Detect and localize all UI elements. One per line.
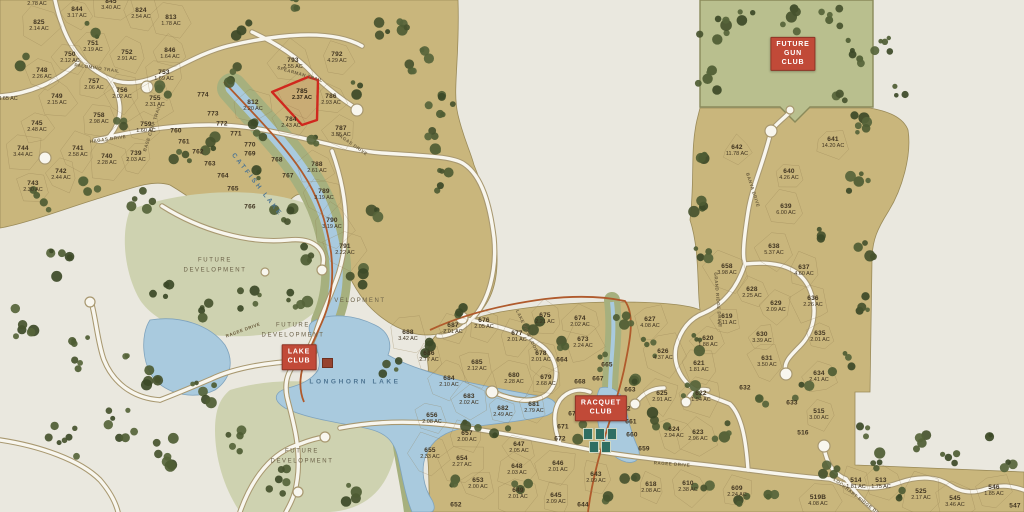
lot-number: 655 bbox=[420, 447, 440, 454]
lot-acreage: 2.01 AC bbox=[443, 330, 463, 336]
lot-785-selected[interactable]: 7852.37 AC bbox=[292, 88, 312, 102]
lot-516[interactable]: 516 bbox=[797, 429, 808, 436]
lot-766[interactable]: 766 bbox=[244, 203, 255, 210]
lot-774[interactable]: 774 bbox=[197, 91, 208, 98]
lot-752[interactable]: 7522.91 AC bbox=[117, 49, 137, 63]
lot-number: 766 bbox=[244, 203, 255, 210]
lot-acreage: 1.64 AC bbox=[160, 55, 180, 61]
lot-number: 623 bbox=[688, 429, 708, 436]
lot-acreage: 11.78 AC bbox=[726, 152, 748, 158]
lot-label[interactable]: 2.78 AC bbox=[27, 1, 47, 7]
lot-number: 631 bbox=[757, 355, 777, 362]
lot-515[interactable]: 5153.00 AC bbox=[809, 408, 829, 422]
lot-acreage: 5.37 AC bbox=[764, 251, 784, 257]
lot-742[interactable]: 7422.44 AC bbox=[51, 168, 71, 182]
lot-762[interactable]: 762 bbox=[192, 148, 203, 155]
lot-767[interactable]: 767 bbox=[282, 172, 293, 179]
lot-number: 516 bbox=[797, 429, 808, 436]
lot-number: 686 bbox=[419, 350, 439, 357]
lot-676[interactable]: 6762.05 AC bbox=[474, 317, 494, 331]
lot-768[interactable]: 768 bbox=[271, 156, 282, 163]
lot-number: 663 bbox=[624, 386, 635, 393]
lot-acreage: 2.20 AC bbox=[243, 107, 263, 113]
lot-acreage: 2.33 AC bbox=[420, 455, 440, 461]
lot-680[interactable]: 6802.28 AC bbox=[504, 372, 524, 386]
lot-741[interactable]: 7412.58 AC bbox=[68, 145, 88, 159]
lot-634[interactable]: 6342.41 AC bbox=[809, 370, 829, 384]
lot-758[interactable]: 7582.98 AC bbox=[89, 112, 109, 126]
lot-number: 625 bbox=[652, 390, 672, 397]
lot-685[interactable]: 6852.12 AC bbox=[467, 359, 487, 373]
lot-748[interactable]: 7482.26 AC bbox=[32, 67, 52, 81]
lot-number: 675 bbox=[535, 312, 555, 319]
lot-acreage: 3.19 AC bbox=[314, 196, 334, 202]
lot-number: 812 bbox=[243, 99, 263, 106]
lot-acreage: 2.10 AC bbox=[439, 383, 459, 389]
lot-825[interactable]: 8252.14 AC bbox=[29, 19, 49, 33]
lot-acreage: 2.78 AC bbox=[27, 1, 47, 7]
road-name-label: BANYA DRIVE bbox=[745, 172, 761, 208]
lot-760[interactable]: 760 bbox=[170, 127, 181, 134]
lot-number: 647 bbox=[509, 441, 529, 448]
lot-number: 768 bbox=[271, 156, 282, 163]
lot-acreage: 3.40 AC bbox=[101, 6, 121, 12]
lot-744[interactable]: 7443.44 AC bbox=[13, 145, 33, 159]
future-development-label: VELOPMENT bbox=[334, 297, 385, 307]
lot-acreage: 2.41 AC bbox=[809, 378, 829, 384]
lot-acreage: 2.25 AC bbox=[742, 294, 762, 300]
lot-acreage: 2.98 AC bbox=[89, 120, 109, 126]
lot-acreage: 2.94 AC bbox=[664, 434, 684, 440]
road-name-label: RAGEE DRIVE bbox=[654, 460, 691, 468]
lot-788[interactable]: 7882.61 AC bbox=[307, 161, 327, 175]
lot-number: 637 bbox=[794, 264, 814, 271]
lot-acreage: 2.24 AC bbox=[573, 344, 593, 350]
development-plat-map: 2.78 AC8443.17 AC8453.40 AC8242.54 AC813… bbox=[0, 0, 1024, 512]
lot-number: 683 bbox=[459, 393, 479, 400]
lot-655[interactable]: 6552.33 AC bbox=[420, 447, 440, 461]
lot-acreage: 2.15 AC bbox=[47, 101, 67, 107]
sign-racquet-club[interactable]: RACQUET CLUB bbox=[575, 395, 627, 421]
lot-number: 687 bbox=[443, 322, 463, 329]
lot-number: 622 bbox=[691, 390, 711, 397]
lot-acreage: 3.39 AC bbox=[752, 339, 772, 345]
lot-632[interactable]: 632 bbox=[739, 384, 750, 391]
lot-number: 660 bbox=[626, 431, 637, 438]
lot-number: 653 bbox=[468, 477, 488, 484]
lot-675[interactable]: 6752.21 AC bbox=[535, 312, 555, 326]
lot-acreage: 2.28 AC bbox=[97, 161, 117, 167]
lot-number: 676 bbox=[474, 317, 494, 324]
lot-acreage: 3.65 AC bbox=[0, 96, 18, 102]
lot-625[interactable]: 6252.91 AC bbox=[652, 390, 672, 404]
lot-acreage: 2.03 AC bbox=[126, 158, 146, 164]
lot-number: 755 bbox=[145, 95, 165, 102]
lot-660[interactable]: 660 bbox=[626, 431, 637, 438]
lot-acreage: 2.01 AC bbox=[508, 495, 528, 501]
lot-number: 513 bbox=[871, 477, 891, 484]
lot-acreage: 1.85 AC bbox=[984, 492, 1004, 498]
lot-acreage: 2.08 AC bbox=[422, 420, 442, 426]
sign-future-gun-club[interactable]: FUTURE GUN CLUB bbox=[770, 37, 815, 71]
lot-acreage: 2.28 AC bbox=[504, 380, 524, 386]
lot-679[interactable]: 6792.68 AC bbox=[536, 374, 556, 388]
lot-acreage: 6.00 AC bbox=[776, 211, 796, 217]
lot-743[interactable]: 7432.30 AC bbox=[23, 180, 43, 194]
lot-number: 785 bbox=[292, 88, 312, 95]
lot-acreage: 2.77 AC bbox=[419, 358, 439, 364]
lot-number: 767 bbox=[282, 172, 293, 179]
lot-756[interactable]: 7562.02 AC bbox=[112, 87, 132, 101]
lot-number: 846 bbox=[160, 47, 180, 54]
lot-number: 761 bbox=[178, 138, 189, 145]
lot-687[interactable]: 6872.01 AC bbox=[443, 322, 463, 336]
lot-number: 648 bbox=[507, 463, 527, 470]
lot-acreage: 1.78 AC bbox=[161, 22, 181, 28]
lot-764[interactable]: 764 bbox=[217, 172, 228, 179]
lot-number: 744 bbox=[13, 145, 33, 152]
lot-number: 661 bbox=[625, 418, 636, 425]
tennis-courts bbox=[583, 428, 619, 452]
lot-acreage: 2.91 AC bbox=[117, 57, 137, 63]
lot-641[interactable]: 64114.20 AC bbox=[822, 136, 845, 150]
lot-acreage: 2.44 AC bbox=[51, 176, 71, 182]
lot-674[interactable]: 6742.02 AC bbox=[570, 315, 590, 329]
lot-number: 609 bbox=[727, 485, 747, 492]
lot-657[interactable]: 6572.00 AC bbox=[457, 430, 477, 444]
lot-number: 636 bbox=[803, 295, 823, 302]
lot-number: 762 bbox=[192, 148, 203, 155]
lot-631[interactable]: 6313.50 AC bbox=[757, 355, 777, 369]
lot-number: 671 bbox=[557, 423, 568, 430]
lot-acreage: 2.00 AC bbox=[468, 485, 488, 491]
future-development-label: FUTURE DEVELOPMENT bbox=[262, 321, 325, 340]
lot-653[interactable]: 6532.00 AC bbox=[468, 477, 488, 491]
lot-664[interactable]: 664 bbox=[556, 356, 567, 363]
lot-621[interactable]: 6211.81 AC bbox=[689, 360, 709, 374]
lot-763[interactable]: 763 bbox=[204, 160, 215, 167]
lot-649[interactable]: 6492.01 AC bbox=[508, 487, 528, 501]
lot-acreage: 3.46 AC bbox=[945, 503, 965, 509]
lot-number: 645 bbox=[546, 492, 566, 499]
lot-749[interactable]: 7492.15 AC bbox=[47, 93, 67, 107]
lot-number: 684 bbox=[439, 375, 459, 382]
lot-acreage: 3.19 AC bbox=[322, 225, 342, 231]
lot-659[interactable]: 659 bbox=[638, 445, 649, 452]
lot-number: 758 bbox=[89, 112, 109, 119]
lot-658[interactable]: 6583.98 AC bbox=[717, 263, 737, 277]
lot-acreage: 2.12 AC bbox=[467, 367, 487, 373]
lot-number: 656 bbox=[422, 412, 442, 419]
lot-number: 673 bbox=[573, 336, 593, 343]
lot-769[interactable]: 769 bbox=[244, 150, 255, 157]
lot-number: 756 bbox=[112, 87, 132, 94]
lot-620[interactable]: 6201.88 AC bbox=[698, 335, 718, 349]
lot-761[interactable]: 761 bbox=[178, 138, 189, 145]
lot-646[interactable]: 6462.01 AC bbox=[548, 460, 568, 474]
lot-acreage: 2.22 AC bbox=[335, 251, 355, 257]
lot-number: 844 bbox=[67, 6, 87, 13]
lot-acreage: 2.08 AC bbox=[641, 489, 661, 495]
lot-671[interactable]: 671 bbox=[557, 423, 568, 430]
lot-number: 641 bbox=[822, 136, 845, 143]
lot-acreage: 3.50 AC bbox=[757, 363, 777, 369]
lot-610[interactable]: 6102.38 AC bbox=[678, 480, 698, 494]
lot-623[interactable]: 6232.96 AC bbox=[688, 429, 708, 443]
lot-665[interactable]: 665 bbox=[601, 361, 612, 368]
lot-633[interactable]: 633 bbox=[786, 399, 797, 406]
lot-acreage: 2.01 AC bbox=[548, 468, 568, 474]
lot-number: 674 bbox=[570, 315, 590, 322]
lot-638[interactable]: 6385.37 AC bbox=[764, 243, 784, 257]
lot-acreage: 2.96 AC bbox=[688, 437, 708, 443]
lot-number: 743 bbox=[23, 180, 43, 187]
lot-acreage: 1.81 AC bbox=[689, 368, 709, 374]
lot-acreage: 2.24 AC bbox=[727, 493, 747, 499]
lot-637[interactable]: 6374.60 AC bbox=[794, 264, 814, 278]
lot-547[interactable]: 547 bbox=[1009, 502, 1020, 509]
lot-number: 632 bbox=[739, 384, 750, 391]
lot-acreage: 3.98 AC bbox=[717, 271, 737, 277]
lot-772[interactable]: 772 bbox=[216, 120, 227, 127]
lot-686[interactable]: 6862.77 AC bbox=[419, 350, 439, 364]
sign-lake-club[interactable]: LAKE CLUB bbox=[282, 344, 317, 370]
lot-824[interactable]: 8242.54 AC bbox=[131, 7, 151, 21]
lot-number: 618 bbox=[641, 481, 661, 488]
lot-acreage: 2.06 AC bbox=[84, 86, 104, 92]
lot-645[interactable]: 6452.09 AC bbox=[546, 492, 566, 506]
lot-number: 546 bbox=[984, 484, 1004, 491]
lot-number: 772 bbox=[216, 120, 227, 127]
lot-609[interactable]: 6092.24 AC bbox=[727, 485, 747, 499]
lot-681[interactable]: 6812.79 AC bbox=[524, 401, 544, 415]
lot-number: 644 bbox=[577, 501, 588, 508]
lot-number: 792 bbox=[327, 51, 347, 58]
lot-628[interactable]: 6282.25 AC bbox=[742, 286, 762, 300]
lot-792[interactable]: 7924.29 AC bbox=[327, 51, 347, 65]
lot-number: 750 bbox=[60, 51, 80, 58]
lot-652[interactable]: 652 bbox=[450, 501, 461, 508]
lot-number: 740 bbox=[97, 153, 117, 160]
lot-513[interactable]: 5131.75 AC bbox=[871, 477, 891, 491]
lot-771[interactable]: 771 bbox=[230, 130, 241, 137]
lot-acreage: 2.26 AC bbox=[803, 303, 823, 309]
road-name-label: RAGEE DRIVE bbox=[225, 321, 261, 338]
lot-number: 760 bbox=[170, 127, 181, 134]
lot-739[interactable]: 7392.03 AC bbox=[126, 150, 146, 164]
lot-740[interactable]: 7402.28 AC bbox=[97, 153, 117, 167]
lot-765[interactable]: 765 bbox=[227, 185, 238, 192]
lot-number: 681 bbox=[524, 401, 544, 408]
lot-525[interactable]: 5252.17 AC bbox=[911, 488, 931, 502]
lot-number: 664 bbox=[556, 356, 567, 363]
lot-845[interactable]: 8453.40 AC bbox=[101, 0, 121, 12]
lot-790[interactable]: 7903.19 AC bbox=[322, 217, 342, 231]
lot-number: 525 bbox=[911, 488, 931, 495]
lot-acreage: 2.02 AC bbox=[459, 401, 479, 407]
road-name-label: HAGAS DRIVE bbox=[89, 134, 126, 144]
lot-acreage: 2.21 AC bbox=[535, 320, 555, 326]
lot-acreage: 4.60 AC bbox=[794, 272, 814, 278]
lot-number: 665 bbox=[601, 361, 612, 368]
lot-644[interactable]: 644 bbox=[577, 501, 588, 508]
lot-number: 764 bbox=[217, 172, 228, 179]
lot-684[interactable]: 6842.10 AC bbox=[439, 375, 459, 389]
lot-630[interactable]: 6303.39 AC bbox=[752, 331, 772, 345]
lot-844[interactable]: 8443.17 AC bbox=[67, 6, 87, 20]
lot-753[interactable]: 7531.69 AC bbox=[154, 69, 174, 83]
lot-acreage: 2.09 AC bbox=[586, 479, 606, 485]
lot-acreage: 2.01 AC bbox=[531, 358, 551, 364]
lot-label[interactable]: 3.65 AC bbox=[0, 96, 18, 102]
lot-654[interactable]: 6542.27 AC bbox=[452, 455, 472, 469]
lot-acreage: 2.14 AC bbox=[29, 27, 49, 33]
lot-519B[interactable]: 519B4.08 AC bbox=[808, 494, 828, 508]
lot-acreage: 4.29 AC bbox=[327, 59, 347, 65]
lot-acreage: 2.30 AC bbox=[23, 188, 43, 194]
lot-667[interactable]: 667 bbox=[592, 375, 603, 382]
lot-acreage: 2.49 AC bbox=[493, 413, 513, 419]
lot-640[interactable]: 6404.26 AC bbox=[779, 168, 799, 182]
lot-number: 757 bbox=[84, 78, 104, 85]
lot-number: 771 bbox=[230, 130, 241, 137]
lot-number: 515 bbox=[809, 408, 829, 415]
lot-number: 685 bbox=[467, 359, 487, 366]
lot-number: 679 bbox=[536, 374, 556, 381]
lot-629[interactable]: 6292.09 AC bbox=[766, 300, 786, 314]
lot-number: 793 bbox=[283, 57, 303, 64]
lot-acreage: 3.44 AC bbox=[13, 153, 33, 159]
lot-number: 789 bbox=[314, 188, 334, 195]
lot-acreage: 4.37 AC bbox=[653, 356, 673, 362]
lot-number: 774 bbox=[197, 91, 208, 98]
lot-acreage: 2.02 AC bbox=[112, 95, 132, 101]
lot-627[interactable]: 6274.08 AC bbox=[640, 316, 660, 330]
lot-number: 654 bbox=[452, 455, 472, 462]
lot-663[interactable]: 663 bbox=[624, 386, 635, 393]
road-name-label: HAGAS DRIVE bbox=[336, 131, 369, 156]
lot-number: 741 bbox=[68, 145, 88, 152]
lot-number: 635 bbox=[810, 330, 830, 337]
lot-number: 639 bbox=[776, 203, 796, 210]
lot-618[interactable]: 6182.08 AC bbox=[641, 481, 661, 495]
lot-number: 787 bbox=[331, 125, 351, 132]
lot-number: 788 bbox=[307, 161, 327, 168]
lot-668[interactable]: 668 bbox=[574, 378, 585, 385]
lot-786[interactable]: 7862.93 AC bbox=[321, 93, 341, 107]
lot-number: 642 bbox=[726, 144, 748, 151]
lot-648[interactable]: 6482.03 AC bbox=[507, 463, 527, 477]
lot-number: 824 bbox=[131, 7, 151, 14]
lot-number: 745 bbox=[27, 120, 47, 127]
lot-688[interactable]: 6883.42 AC bbox=[398, 329, 418, 343]
lot-846[interactable]: 8461.64 AC bbox=[160, 47, 180, 61]
lot-acreage: 2.91 AC bbox=[652, 398, 672, 404]
lot-number: 813 bbox=[161, 14, 181, 21]
lot-number: 633 bbox=[786, 399, 797, 406]
lot-643[interactable]: 6432.09 AC bbox=[586, 471, 606, 485]
lot-acreage: 2.00 AC bbox=[457, 438, 477, 444]
lot-751[interactable]: 7512.19 AC bbox=[83, 40, 103, 54]
lot-acreage: 1.75 AC bbox=[871, 485, 891, 491]
lot-acreage: 2.79 AC bbox=[524, 409, 544, 415]
lake-name-label: LONGHORN LAKE bbox=[309, 379, 400, 386]
lot-789[interactable]: 7893.19 AC bbox=[314, 188, 334, 202]
lot-acreage: 14.20 AC bbox=[822, 144, 845, 150]
lot-773[interactable]: 773 bbox=[207, 110, 218, 117]
lot-682[interactable]: 6822.49 AC bbox=[493, 405, 513, 419]
lot-acreage: 2.58 AC bbox=[68, 153, 88, 159]
lot-number: 753 bbox=[154, 69, 174, 76]
lot-661[interactable]: 661 bbox=[625, 418, 636, 425]
lot-673[interactable]: 6732.24 AC bbox=[573, 336, 593, 350]
lot-770[interactable]: 770 bbox=[244, 141, 255, 148]
lot-622[interactable]: 6221.94 AC bbox=[691, 390, 711, 404]
lot-number: 742 bbox=[51, 168, 71, 175]
lot-number: 791 bbox=[335, 243, 355, 250]
lot-791[interactable]: 7912.22 AC bbox=[335, 243, 355, 257]
lot-639[interactable]: 6396.00 AC bbox=[776, 203, 796, 217]
lot-number: 626 bbox=[653, 348, 673, 355]
lot-number: 627 bbox=[640, 316, 660, 323]
lot-acreage: 2.26 AC bbox=[32, 75, 52, 81]
lot-number: 640 bbox=[779, 168, 799, 175]
lot-acreage: 4.08 AC bbox=[640, 324, 660, 330]
lot-635[interactable]: 6352.01 AC bbox=[810, 330, 830, 344]
lot-acreage: 2.61 AC bbox=[307, 169, 327, 175]
lot-acreage: 2.93 AC bbox=[321, 101, 341, 107]
lot-number: 770 bbox=[244, 141, 255, 148]
lot-number: 672 bbox=[554, 435, 565, 442]
lot-acreage: 2.54 AC bbox=[131, 15, 151, 21]
lot-number: 765 bbox=[227, 185, 238, 192]
lot-636[interactable]: 6362.26 AC bbox=[803, 295, 823, 309]
lot-acreage: 2.05 AC bbox=[509, 449, 529, 455]
lot-number: 545 bbox=[945, 495, 965, 502]
lot-626[interactable]: 6264.37 AC bbox=[653, 348, 673, 362]
lot-number: 621 bbox=[689, 360, 709, 367]
lot-546[interactable]: 5461.85 AC bbox=[984, 484, 1004, 498]
lot-acreage: 3.00 AC bbox=[809, 416, 829, 422]
lot-745[interactable]: 7452.48 AC bbox=[27, 120, 47, 134]
lot-number: 763 bbox=[204, 160, 215, 167]
lot-672[interactable]: 672 bbox=[554, 435, 565, 442]
lot-number: 628 bbox=[742, 286, 762, 293]
lot-acreage: 2.19 AC bbox=[83, 48, 103, 54]
lot-624[interactable]: 6242.94 AC bbox=[664, 426, 684, 440]
lot-number: 519B bbox=[808, 494, 828, 501]
lot-683[interactable]: 6832.02 AC bbox=[459, 393, 479, 407]
lot-acreage: 2.48 AC bbox=[27, 128, 47, 134]
lot-number: 790 bbox=[322, 217, 342, 224]
lot-642[interactable]: 64211.78 AC bbox=[726, 144, 748, 158]
lot-number: 680 bbox=[504, 372, 524, 379]
lot-757[interactable]: 7572.06 AC bbox=[84, 78, 104, 92]
lot-number: 752 bbox=[117, 49, 137, 56]
lot-656[interactable]: 6562.08 AC bbox=[422, 412, 442, 426]
lot-812[interactable]: 8122.20 AC bbox=[243, 99, 263, 113]
lot-813[interactable]: 8131.78 AC bbox=[161, 14, 181, 28]
lot-647[interactable]: 6472.05 AC bbox=[509, 441, 529, 455]
lot-number: 620 bbox=[698, 335, 718, 342]
lot-number: 624 bbox=[664, 426, 684, 433]
lot-number: 825 bbox=[29, 19, 49, 26]
lot-number: 643 bbox=[586, 471, 606, 478]
lot-545[interactable]: 5453.46 AC bbox=[945, 495, 965, 509]
lot-784[interactable]: 7842.43 AC bbox=[281, 116, 301, 130]
lot-number: 784 bbox=[281, 116, 301, 123]
lot-acreage: 2.05 AC bbox=[474, 325, 494, 331]
